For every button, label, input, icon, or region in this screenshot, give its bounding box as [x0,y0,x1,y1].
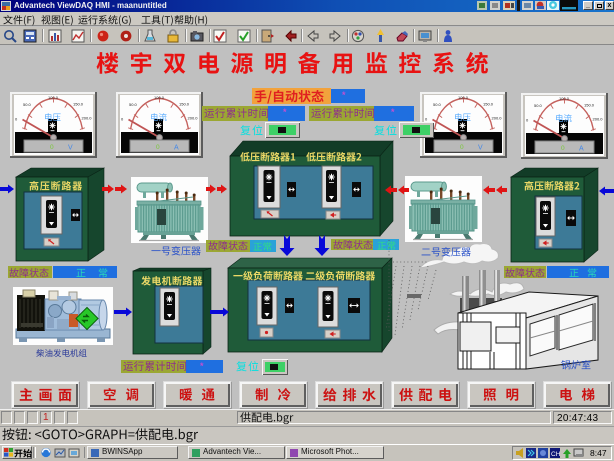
svg-text:CH: CH [551,451,561,458]
